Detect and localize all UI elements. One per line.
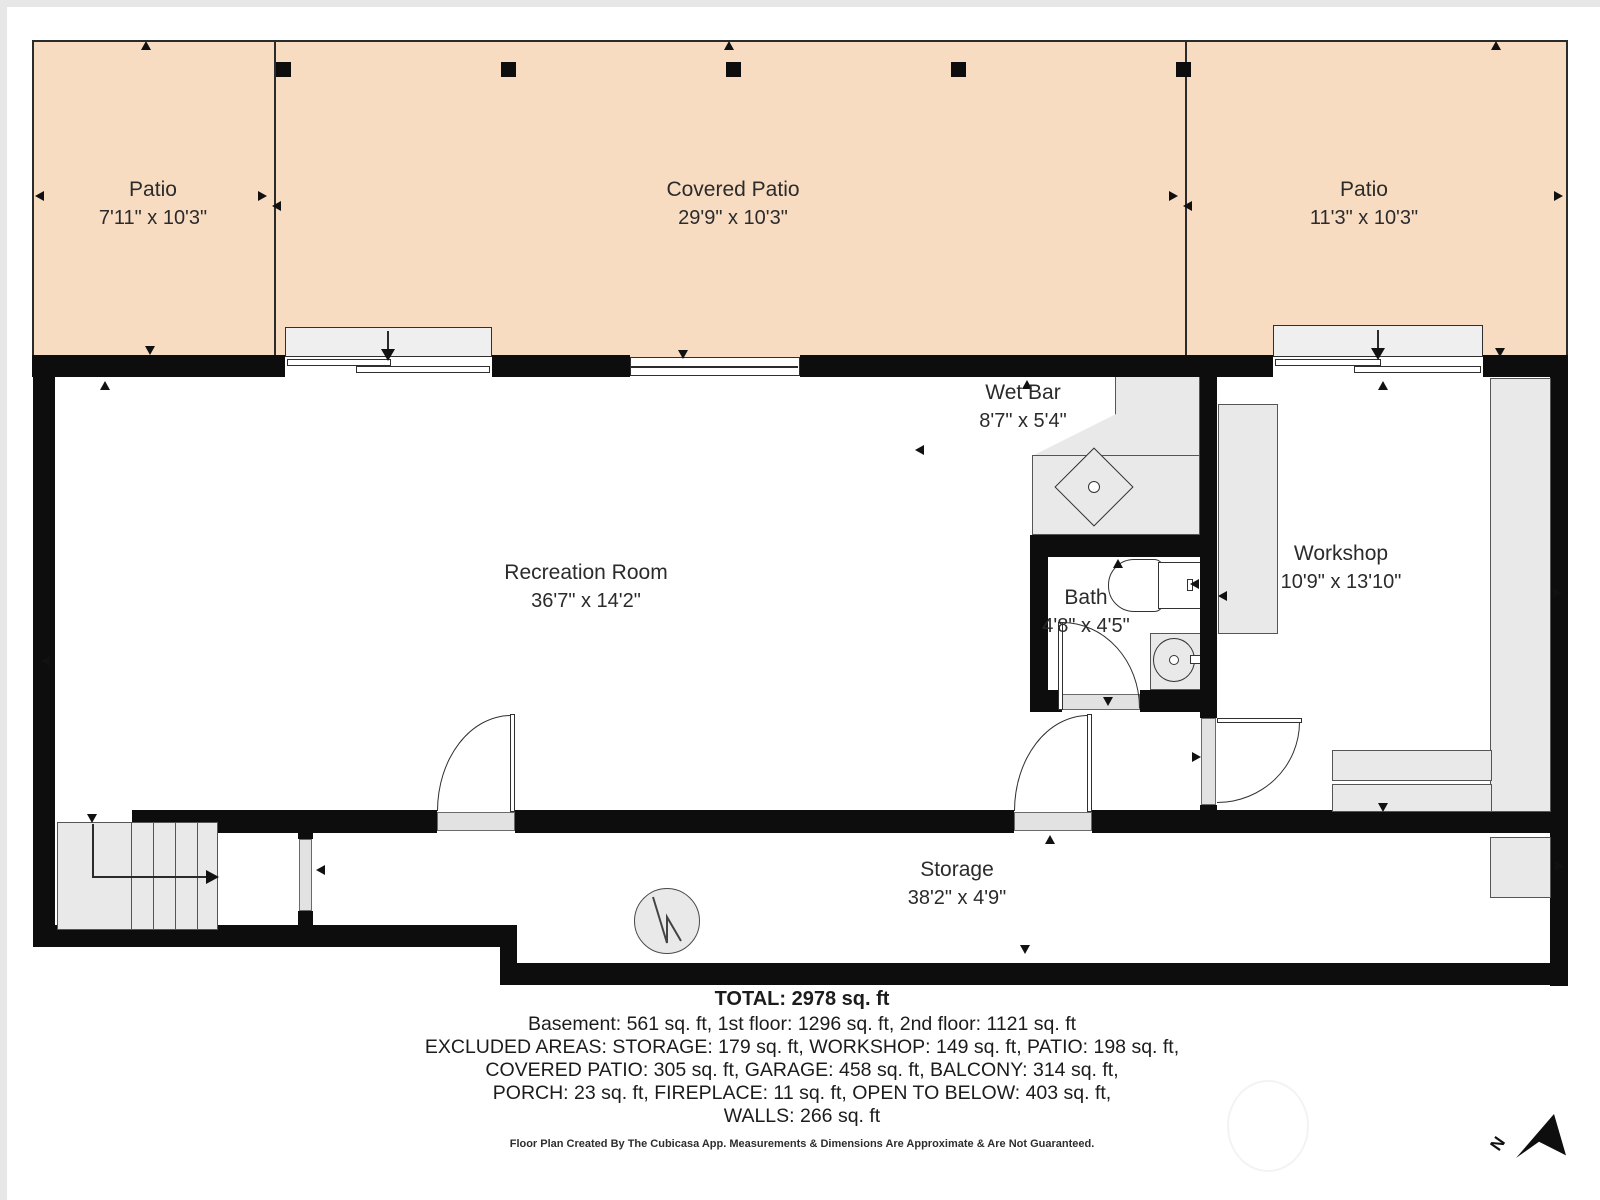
room-name: Bath — [1042, 583, 1129, 612]
room-label-storage: Storage 38'2" x 4'9" — [908, 855, 1007, 913]
marker-left — [316, 865, 325, 875]
marker-down — [678, 350, 688, 359]
wetbar-sink-drain — [1086, 479, 1103, 496]
bath-sink-drain — [1169, 655, 1179, 665]
summary-line: Basement: 561 sq. ft, 1st floor: 1296 sq… — [2, 1013, 1600, 1036]
marker-down — [145, 346, 155, 355]
stair-direction-line — [92, 824, 94, 878]
door-threshold — [437, 812, 515, 831]
marker-up — [141, 41, 151, 50]
marker-right — [1553, 588, 1562, 598]
summary-line: COVERED PATIO: 305 sq. ft, GARAGE: 458 s… — [2, 1059, 1600, 1082]
wall — [1030, 535, 1217, 557]
sliding-door-arrow — [387, 331, 389, 351]
summary-line: WALLS: 266 sq. ft — [2, 1105, 1600, 1128]
wall — [517, 963, 1568, 985]
marker-left — [35, 191, 44, 201]
storage-shelf — [1490, 837, 1551, 898]
post — [1176, 62, 1191, 77]
door-swing-arc — [1217, 722, 1300, 803]
sliding-door-panel — [1354, 366, 1481, 373]
room-label-recreation-room: Recreation Room 36'7" x 14'2" — [504, 558, 667, 616]
wall — [800, 355, 1273, 377]
wall — [1092, 810, 1553, 833]
wall — [1200, 805, 1217, 833]
door-leaf — [510, 714, 515, 812]
workshop-bench-bottom — [1332, 784, 1492, 812]
marker-up — [100, 381, 110, 390]
marker-right — [258, 191, 267, 201]
door-threshold — [1201, 718, 1216, 805]
room-name: Covered Patio — [666, 175, 799, 204]
sliding-door-arrow-head — [381, 349, 395, 361]
disclaimer: Floor Plan Created By The Cubicasa App. … — [2, 1138, 1600, 1150]
workshop-bench-left — [1218, 404, 1278, 634]
floor-plan: Patio 7'11" x 10'3" Covered Patio 29'9" … — [0, 0, 1600, 1200]
post — [501, 62, 516, 77]
stair-direction-line — [92, 876, 208, 878]
room-dims: 7'11" x 10'3" — [99, 204, 207, 233]
door-threshold — [1014, 812, 1092, 831]
room-name: Storage — [908, 855, 1007, 884]
window — [630, 357, 800, 376]
sliding-door-arrow-head — [1371, 348, 1385, 360]
post — [276, 62, 291, 77]
marker-right — [1555, 861, 1564, 871]
room-name: Patio — [1310, 175, 1418, 204]
marker-left — [41, 656, 50, 666]
marker-up — [1491, 41, 1501, 50]
marker-right — [1554, 191, 1563, 201]
marker-left — [915, 445, 924, 455]
room-name: Patio — [99, 175, 207, 204]
post — [951, 62, 966, 77]
post — [726, 62, 741, 77]
door-leaf — [1087, 714, 1092, 812]
marker-left — [1190, 579, 1199, 589]
room-dims: 36'7" x 14'2" — [504, 587, 667, 616]
room-dims: 11'3" x 10'3" — [1310, 204, 1418, 233]
furnace-symbol — [635, 889, 698, 952]
marker-up — [1045, 835, 1055, 844]
door-swing-arc — [1014, 715, 1088, 811]
summary-line: EXCLUDED AREAS: STORAGE: 179 sq. ft, WOR… — [2, 1036, 1600, 1059]
north-label: N — [1486, 1133, 1509, 1155]
patio-divider — [1185, 40, 1187, 357]
summary-line: PORCH: 23 sq. ft, FIREPLACE: 11 sq. ft, … — [2, 1082, 1600, 1105]
wall — [1200, 377, 1217, 718]
room-dims: 38'2" x 4'9" — [908, 884, 1007, 913]
room-dims: 4'8" x 4'5" — [1042, 612, 1129, 641]
room-dims: 29'9" x 10'3" — [666, 204, 799, 233]
room-dims: 10'9" x 13'10" — [1281, 568, 1402, 597]
room-label-patio-right: Patio 11'3" x 10'3" — [1310, 175, 1418, 233]
marker-right — [1192, 752, 1201, 762]
room-name: Wet Bar — [979, 378, 1066, 407]
marker-up — [724, 41, 734, 50]
marker-right — [1169, 191, 1178, 201]
wall — [298, 825, 313, 839]
marker-left — [1218, 591, 1227, 601]
marker-down — [1103, 697, 1113, 706]
workshop-bench-bottom — [1332, 750, 1492, 781]
cased-opening — [299, 839, 312, 911]
workshop-bench-right — [1490, 378, 1551, 812]
wall — [492, 355, 630, 377]
bath-sink — [1153, 638, 1195, 682]
room-label-covered-patio: Covered Patio 29'9" x 10'3" — [666, 175, 799, 233]
patio-divider — [274, 40, 276, 357]
wetbar-counter — [1115, 377, 1200, 457]
marker-up — [1113, 559, 1123, 568]
marker-down — [1020, 945, 1030, 954]
marker-left — [1183, 201, 1192, 211]
marker-down — [1495, 348, 1505, 357]
room-name: Workshop — [1281, 539, 1402, 568]
wall — [298, 911, 313, 932]
wall — [32, 355, 285, 377]
watermark-circle — [1227, 1080, 1309, 1172]
sliding-door-panel — [287, 359, 391, 366]
furnace — [634, 888, 700, 954]
sliding-door-panel — [356, 366, 490, 373]
window-line — [631, 366, 798, 368]
room-name: Recreation Room — [504, 558, 667, 587]
wall — [1550, 355, 1568, 986]
room-label-bath: Bath 4'8" x 4'5" — [1042, 583, 1129, 641]
image-edge — [0, 0, 1600, 7]
marker-down — [87, 814, 97, 823]
marker-up — [1378, 381, 1388, 390]
wall — [33, 355, 55, 947]
wall — [500, 947, 517, 985]
wall — [515, 810, 1014, 833]
door-leaf — [1217, 718, 1302, 723]
stair-direction-arrow — [206, 870, 219, 884]
door-swing-arc — [437, 715, 511, 811]
sliding-door-arrow — [1377, 330, 1379, 350]
room-label-patio-left: Patio 7'11" x 10'3" — [99, 175, 207, 233]
sliding-door-panel — [1275, 359, 1381, 366]
marker-down — [1378, 803, 1388, 812]
summary-total: TOTAL: 2978 sq. ft — [2, 988, 1600, 1011]
marker-left — [272, 201, 281, 211]
room-dims: 8'7" x 5'4" — [979, 407, 1066, 436]
room-label-wet-bar: Wet Bar 8'7" x 5'4" — [979, 378, 1066, 436]
room-label-workshop: Workshop 10'9" x 13'10" — [1281, 539, 1402, 597]
